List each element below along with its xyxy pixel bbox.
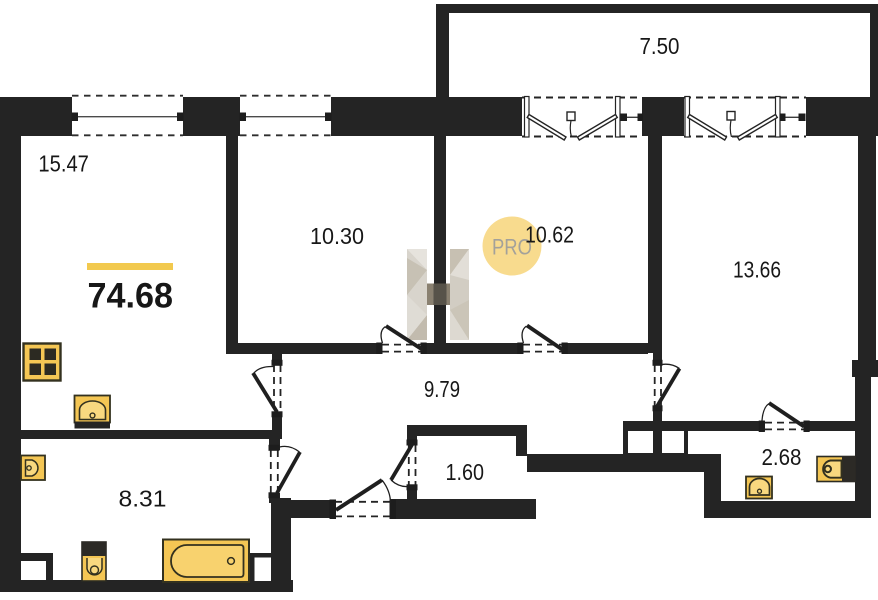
- svg-text:10.30: 10.30: [310, 223, 364, 249]
- svg-text:7.50: 7.50: [640, 33, 680, 59]
- svg-text:8.31: 8.31: [119, 486, 167, 512]
- svg-text:2.68: 2.68: [762, 444, 802, 470]
- svg-text:9.79: 9.79: [424, 376, 460, 402]
- svg-text:15.47: 15.47: [38, 151, 89, 177]
- svg-text:74.68: 74.68: [88, 276, 174, 316]
- svg-text:13.66: 13.66: [733, 257, 781, 283]
- svg-text:10.62: 10.62: [525, 222, 574, 248]
- svg-text:1.60: 1.60: [446, 459, 485, 485]
